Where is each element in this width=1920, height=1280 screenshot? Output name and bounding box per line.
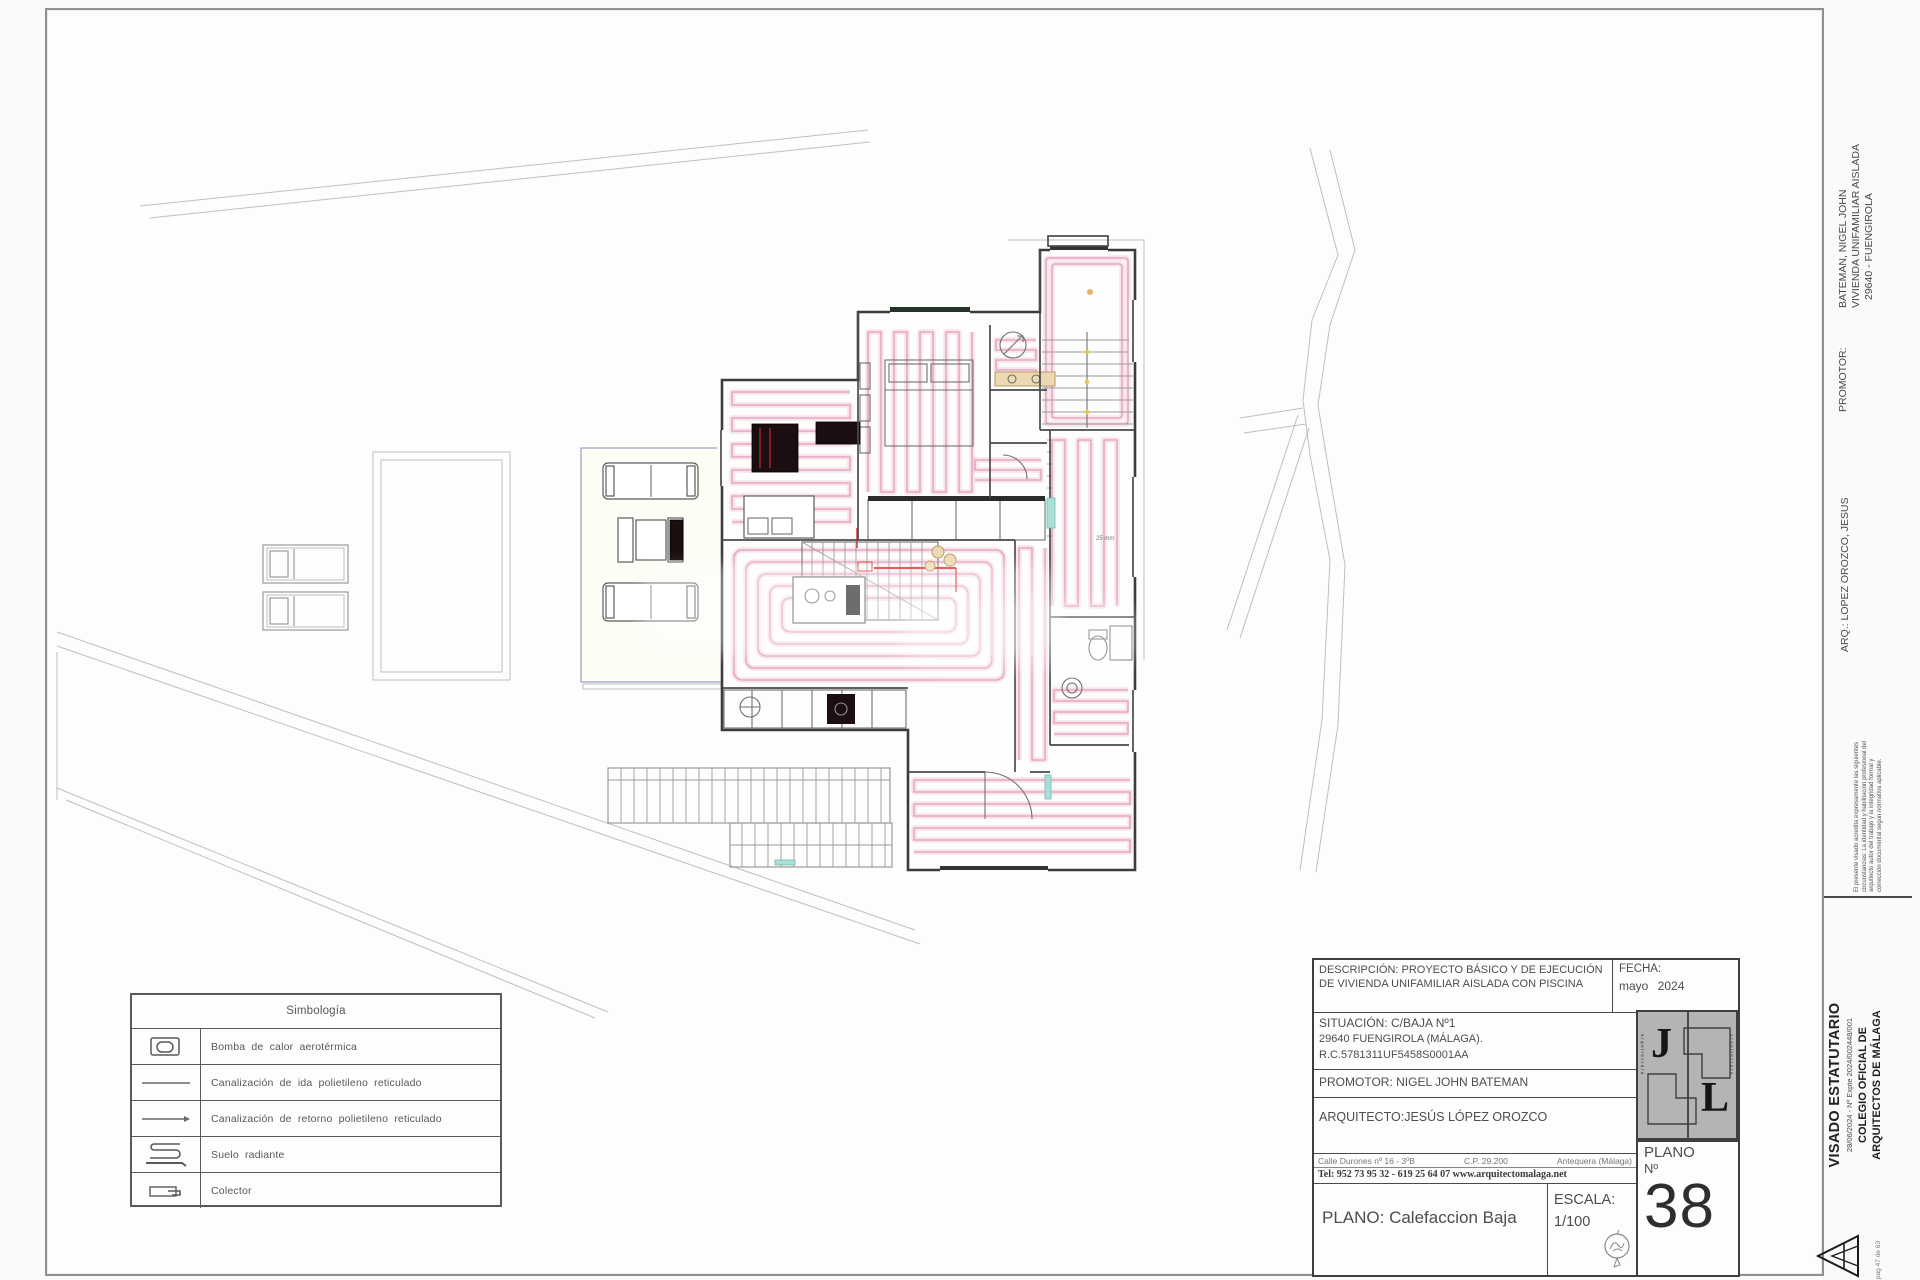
scale-label: ESCALA:: [1554, 1190, 1630, 1212]
timber-deck: [608, 768, 892, 867]
visado-expediente: 28/06/2024 - Nº Expte 2024/002448/001: [1845, 945, 1854, 1225]
location-line: SITUACIÓN: C/BAJA Nº1: [1319, 1015, 1631, 1032]
margin-promoter-label: PROMOTOR:: [1838, 347, 1849, 412]
location-line: R.C.5781311UF5458S0001AA: [1319, 1048, 1631, 1064]
logo-step-lines: [1638, 1012, 1738, 1140]
watermark-smudge: [900, 600, 1140, 670]
margin-architect-line: ARQ.: LOPEZ OROZCO, JESUS: [1840, 497, 1851, 652]
legend-box: Simbología Bomba de calor aerotérmica Ca…: [130, 993, 502, 1207]
date-value: mayo 2024: [1619, 979, 1732, 993]
architect-cell: ARQUITECTO:JESÚS LÓPEZ OROZCO: [1314, 1097, 1636, 1153]
phone-line: Tel: 952 73 95 32 - 619 25 64 07 www.arq…: [1314, 1168, 1636, 1181]
legend-row: Colector: [132, 1173, 500, 1208]
signature-stamp-icon: [1600, 1229, 1634, 1271]
legend-row: Bomba de calor aerotérmica: [132, 1029, 500, 1065]
address-cell: Calle Durones nº 16 - 3ºB C.P. 29.200 An…: [1314, 1153, 1636, 1183]
margin-separator-line: [1824, 896, 1912, 898]
legend-label: Canalización de retorno polietileno reti…: [201, 1101, 500, 1136]
plan-number-label: PLANO: [1644, 1144, 1738, 1161]
title-block: DESCRIPCIÓN: PROYECTO BÁSICO Y DE EJECUC…: [1312, 958, 1740, 1277]
collector-icon: [132, 1173, 201, 1208]
heat-pump-icon: [132, 1029, 201, 1064]
sunbeds: [263, 545, 348, 630]
legend-label: Canalización de ida polietileno reticula…: [201, 1065, 500, 1100]
pipe-size-annotation: 25 mm: [1096, 536, 1114, 542]
radiant-floor-icon: [132, 1137, 201, 1172]
drawing-sheet: 25 mm Simbología Bomba de calor aerotérm…: [0, 0, 1920, 1280]
scale-cell: ESCALA: 1/100: [1547, 1183, 1636, 1275]
promoter-cell: PROMOTOR: NIGEL JOHN BATEMAN: [1314, 1069, 1636, 1097]
legend-label: Suelo radiante: [201, 1137, 500, 1172]
margin-promoter-project: VIVIENDA UNIFAMILIAR AISLADA: [1851, 144, 1862, 308]
colegio-line: ARQUITECTOS DE MÁLAGA: [1871, 945, 1883, 1225]
legend-row: Suelo radiante: [132, 1137, 500, 1173]
address-line: Calle Durones nº 16 - 3ºB C.P. 29.200 An…: [1314, 1154, 1636, 1168]
legend-title: Simbología: [132, 995, 500, 1029]
location-cell: SITUACIÓN: C/BAJA Nº1 29640 FUENGIROLA (…: [1314, 1012, 1636, 1069]
margin-promoter-city: 29640 - FUENGIROLA: [1864, 193, 1875, 300]
margin-visado-block: VISADO ESTATUTARIO 28/06/2024 - Nº Expte…: [1827, 945, 1883, 1225]
margin-visado-note: El presente visado acredita expresamente…: [1854, 740, 1884, 892]
logo-side-text: arquitectura: [1640, 1034, 1645, 1076]
visado-title: VISADO ESTATUTARIO: [1827, 945, 1843, 1225]
architect-logo: J L arquitectura arquitectura: [1636, 1010, 1738, 1140]
description-cell: DESCRIPCIÓN: PROYECTO BÁSICO Y DE EJECUC…: [1314, 960, 1612, 1012]
pool: [373, 452, 510, 680]
legend-row: Canalización de ida polietileno reticula…: [132, 1065, 500, 1101]
date-cell: FECHA: mayo 2024: [1612, 960, 1738, 1012]
plan-title-cell: PLANO: Calefaccion Baja: [1314, 1183, 1547, 1275]
plan-number-value: 38: [1644, 1178, 1738, 1237]
colegio-arquitectos-logo-icon: [1812, 1232, 1862, 1280]
supply-pipe-icon: [132, 1065, 201, 1100]
date-label: FECHA:: [1619, 963, 1732, 975]
road-lines: [1227, 148, 1355, 872]
logo-side-text: arquitectura: [1729, 1034, 1734, 1076]
return-pipe-icon: [132, 1101, 201, 1136]
plan-number-cell: PLANO Nº 38: [1636, 1140, 1738, 1275]
location-line: 29640 FUENGIROLA (MÁLAGA).: [1319, 1032, 1631, 1048]
legend-label: Colector: [201, 1173, 500, 1208]
margin-promoter-name: BATEMAN, NIGEL JOHN: [1838, 190, 1849, 308]
legend-row: Canalización de retorno polietileno reti…: [132, 1101, 500, 1137]
legend-label: Bomba de calor aerotérmica: [201, 1029, 500, 1064]
margin-page-ref: pag 47 de 63: [1876, 1241, 1883, 1279]
colegio-line: COLEGIO OFICIAL DE: [1857, 945, 1869, 1225]
